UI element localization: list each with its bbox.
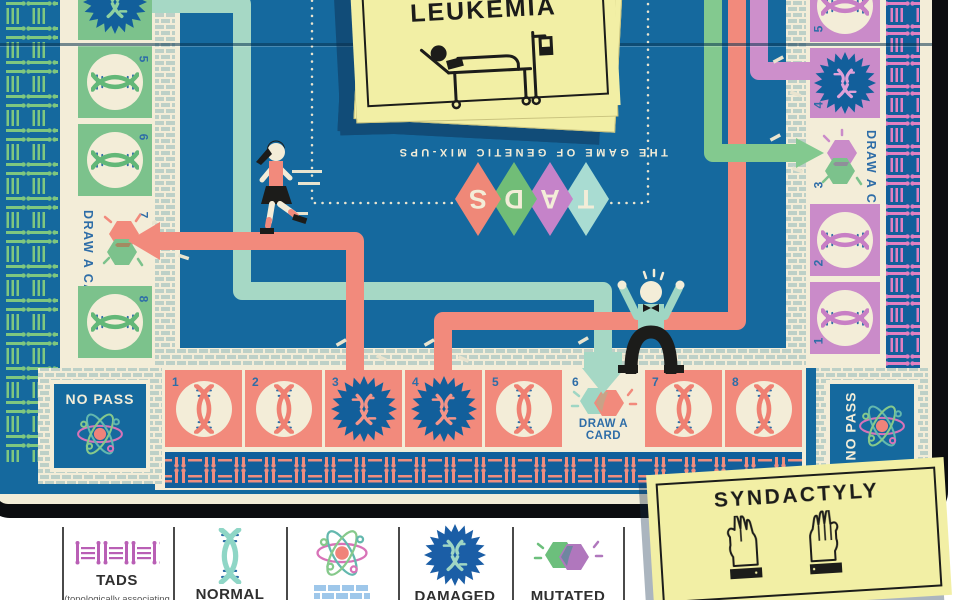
draw-pile-card-stack[interactable]: LEUKEMIA xyxy=(352,0,618,120)
card-inner-border xyxy=(359,0,609,107)
card-inner-border xyxy=(656,467,943,600)
top-card[interactable]: LEUKEMIA xyxy=(347,0,620,119)
cheering-figure xyxy=(606,266,696,374)
played-card[interactable]: SYNDACTYLY xyxy=(646,457,952,600)
runner-figure xyxy=(228,136,328,236)
arrow-into-right-3 xyxy=(796,138,824,168)
arrow-into-left-7 xyxy=(128,222,160,260)
page: { "board": { "subtitle": "THE GAME OF GE… xyxy=(0,0,960,600)
